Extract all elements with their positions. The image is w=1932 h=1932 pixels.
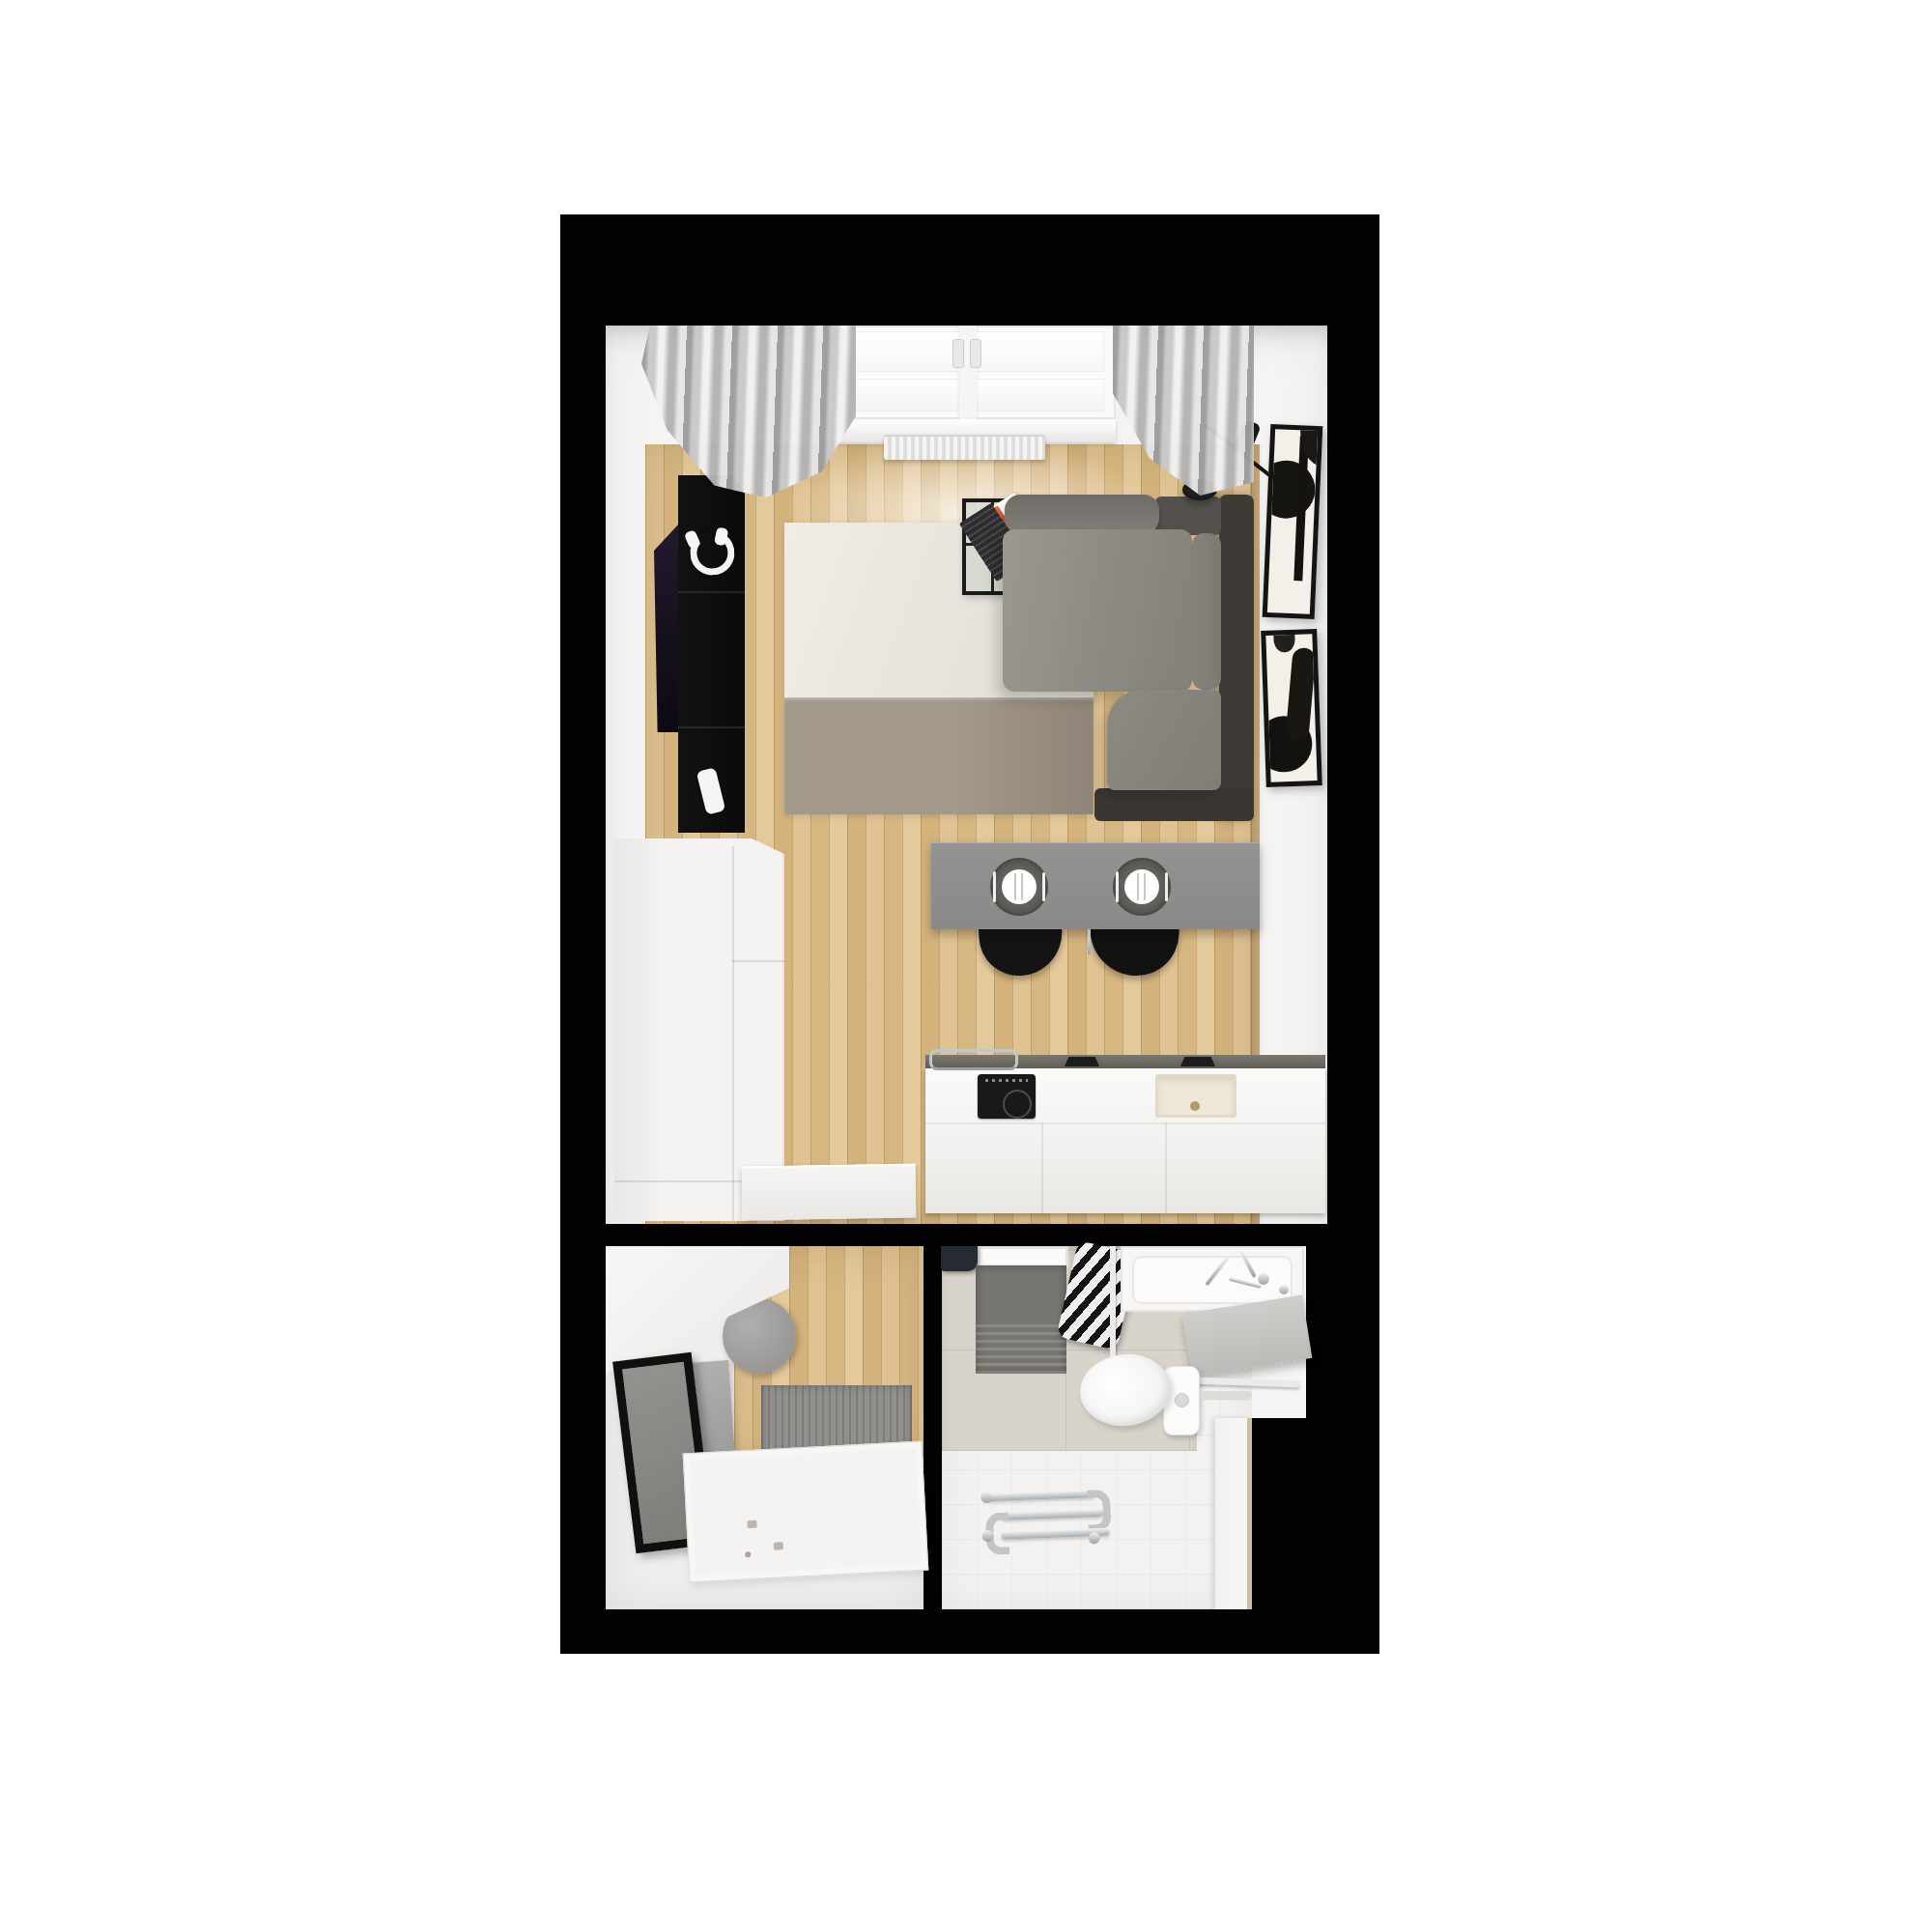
drain-pipe	[1202, 1391, 1252, 1400]
kitchen-sink	[1155, 1074, 1236, 1118]
sink-drain	[1190, 1101, 1200, 1111]
bench	[742, 1163, 917, 1220]
entry-door-panel	[683, 1441, 929, 1583]
fork	[1116, 871, 1119, 902]
fork	[993, 871, 996, 902]
plate	[1002, 869, 1037, 904]
toilet-flush-button	[1175, 1393, 1189, 1407]
sofa-armrest-bottom	[1094, 788, 1254, 821]
headphones	[686, 527, 728, 572]
window-handle-right	[970, 339, 981, 368]
stool-leg	[1088, 929, 1091, 954]
shower-fixture	[941, 1246, 978, 1271]
toilet-bowl	[1076, 1350, 1174, 1430]
side-panel-edge	[1247, 1418, 1252, 1609]
shower-tray	[974, 1246, 1068, 1267]
place-setting-left	[990, 858, 1048, 916]
sofa-back-cushion-top	[1005, 495, 1159, 533]
dining-island	[931, 842, 1260, 929]
window-handle-left	[952, 339, 964, 368]
tall-cabinet	[614, 838, 784, 1221]
rug-band	[784, 697, 1094, 814]
spoon	[1165, 872, 1168, 901]
wall-art-upper	[1263, 424, 1323, 619]
window	[811, 326, 1116, 419]
door-hinge	[747, 1520, 756, 1529]
bath-mat	[976, 1265, 1066, 1374]
wall-art-lower	[1261, 629, 1322, 787]
tv	[654, 524, 679, 732]
toilet	[1080, 1350, 1202, 1439]
floor-grab-bars	[979, 1488, 1112, 1548]
sofa-chaise-seat	[1003, 529, 1192, 692]
sofa-seat-lower	[1107, 690, 1221, 790]
knife	[1042, 872, 1045, 901]
floor-plan-render	[0, 0, 1932, 1932]
place-setting-right	[1113, 858, 1171, 916]
sofa-back-cushion-right	[1192, 533, 1221, 690]
door-viewer	[745, 1551, 751, 1557]
induction-hob	[978, 1074, 1036, 1119]
counter-handle-right	[1180, 1057, 1215, 1066]
counter-handle-left	[1065, 1057, 1099, 1066]
door-hinge	[774, 1542, 783, 1550]
plate	[1124, 869, 1159, 904]
utensil-rail	[929, 1049, 1018, 1070]
sofa-frame-right	[1219, 495, 1254, 821]
radiator	[884, 435, 1045, 460]
